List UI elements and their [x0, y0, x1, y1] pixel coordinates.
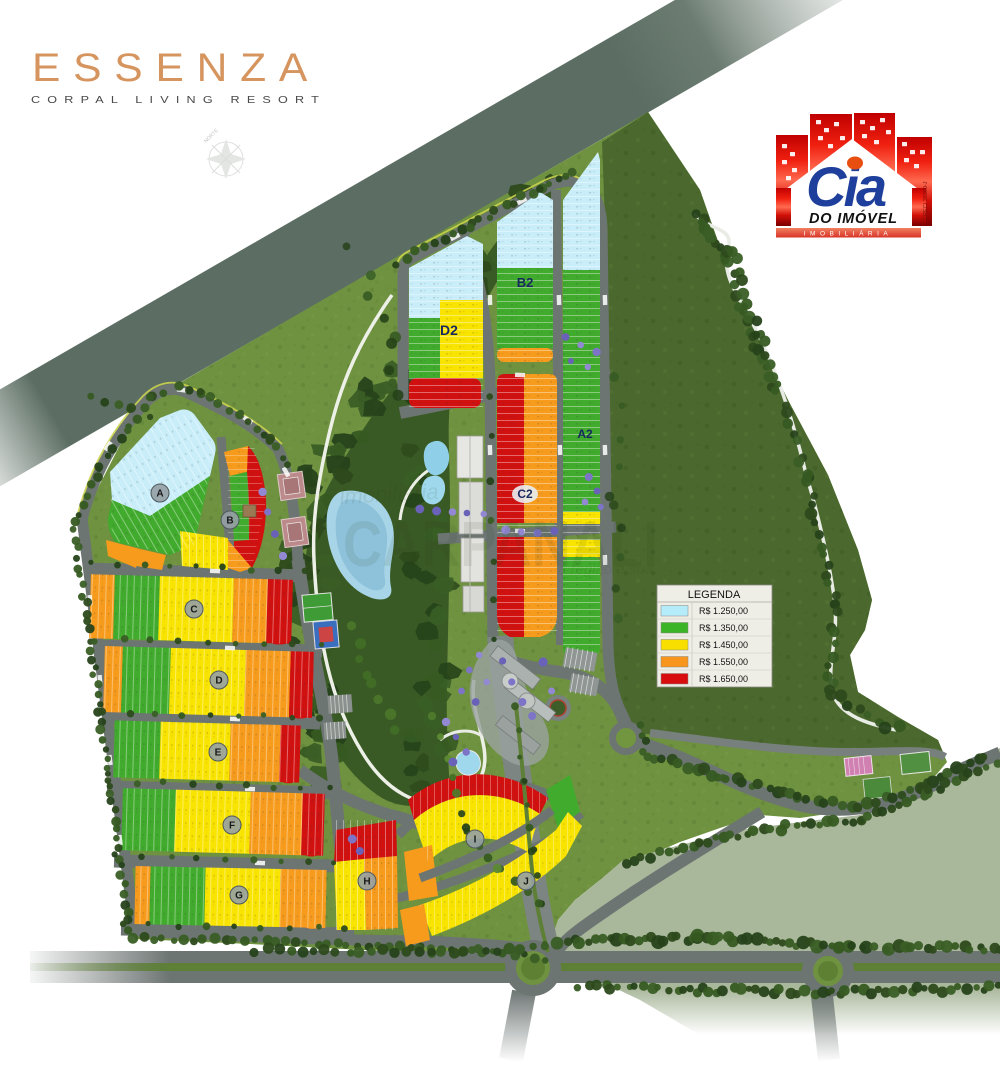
svg-text:J: J: [523, 877, 529, 888]
svg-text:R$ 1.650,00: R$ 1.650,00: [699, 674, 748, 684]
svg-text:E: E: [215, 748, 222, 759]
svg-text:IMOBILIÁRIA: IMOBILIÁRIA: [804, 229, 893, 238]
svg-text:imobiliária: imobiliária: [339, 479, 439, 509]
svg-text:I: I: [474, 835, 477, 846]
svg-text:LEGENDA: LEGENDA: [688, 589, 741, 601]
svg-text:R$ 1.450,00: R$ 1.450,00: [699, 640, 748, 650]
svg-text:B: B: [226, 516, 233, 527]
svg-text:C: C: [190, 605, 197, 616]
svg-text:R$ 1.550,00: R$ 1.550,00: [699, 657, 748, 667]
svg-text:F: F: [229, 821, 235, 832]
svg-text:ESSENZA: ESSENZA: [32, 46, 320, 90]
svg-text:Cia: Cia: [806, 155, 886, 218]
svg-text:A: A: [156, 489, 163, 500]
svg-text:R$ 1.250,00: R$ 1.250,00: [699, 606, 748, 616]
svg-text:D2: D2: [440, 322, 458, 338]
svg-text:CRECI 38300-J: CRECI 38300-J: [923, 181, 929, 220]
svg-text:C2: C2: [517, 487, 533, 501]
svg-text:R$ 1.350,00: R$ 1.350,00: [699, 623, 748, 633]
svg-text:G: G: [235, 891, 243, 902]
svg-text:a região é sua.: a região é sua.: [558, 561, 657, 578]
svg-text:H: H: [363, 877, 370, 888]
svg-text:CORPAL LIVING RESORT: CORPAL LIVING RESORT: [31, 94, 326, 106]
svg-text:A2: A2: [577, 427, 593, 441]
svg-text:B2: B2: [517, 275, 534, 290]
svg-text:D: D: [215, 676, 222, 687]
svg-text:DO IMÓVEL: DO IMÓVEL: [809, 209, 897, 227]
